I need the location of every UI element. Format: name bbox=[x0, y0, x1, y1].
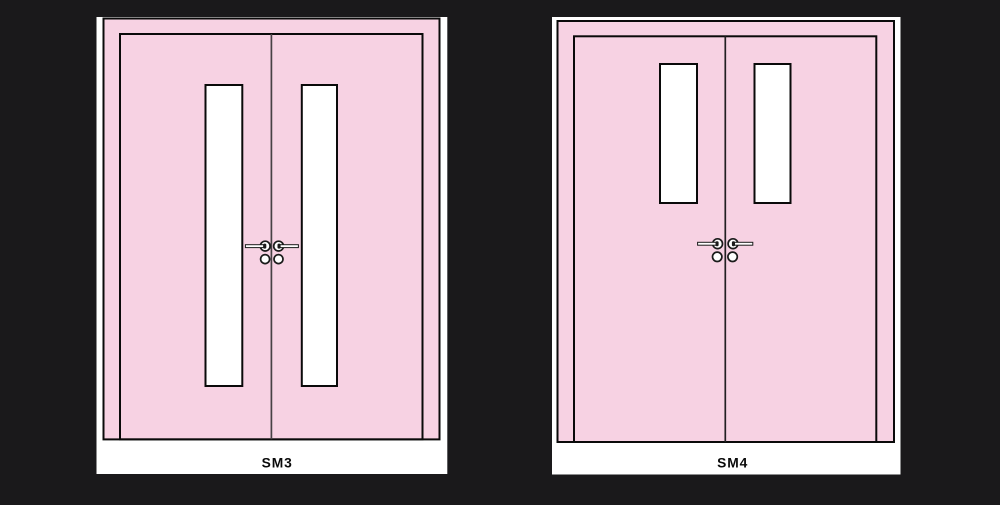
svg-text:SM4: SM4 bbox=[717, 456, 748, 471]
svg-text:SM3: SM3 bbox=[262, 456, 293, 471]
